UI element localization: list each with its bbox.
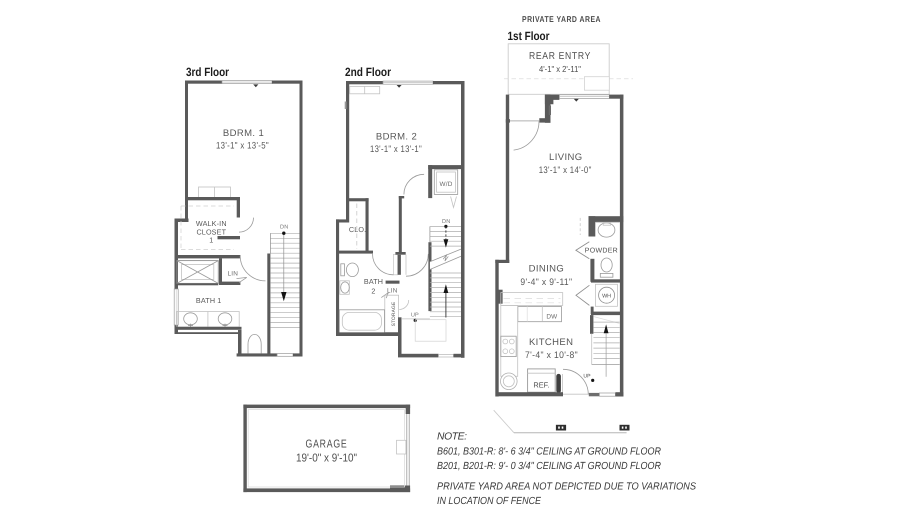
svg-text:UP: UP	[411, 312, 419, 318]
svg-text:IN LOCATION OF FENCE: IN LOCATION OF FENCE	[437, 496, 541, 507]
svg-text:PRIVATE YARD AREA: PRIVATE YARD AREA	[522, 14, 601, 24]
svg-text:DINING: DINING	[529, 264, 565, 275]
svg-text:3rd Floor: 3rd Floor	[186, 65, 229, 79]
svg-text:PRIVATE YARD AREA NOT DEPICTED: PRIVATE YARD AREA NOT DEPICTED DUE TO VA…	[437, 481, 696, 492]
svg-text:KITCHEN: KITCHEN	[529, 337, 574, 348]
svg-text:LIN: LIN	[387, 287, 398, 294]
svg-text:2: 2	[371, 287, 375, 296]
svg-text:STORAGE: STORAGE	[391, 302, 397, 327]
svg-text:BDRM. 2: BDRM. 2	[376, 132, 417, 143]
svg-text:UP: UP	[583, 374, 591, 380]
svg-text:GARAGE: GARAGE	[306, 439, 348, 451]
svg-text:19'-0" x 9'-10": 19'-0" x 9'-10"	[296, 453, 357, 465]
svg-text:W/D: W/D	[439, 181, 452, 188]
svg-text:B201, B201-R: 9'- 0 3/4" CEILI: B201, B201-R: 9'- 0 3/4" CEILING AT GROU…	[437, 461, 661, 472]
svg-text:REF.: REF.	[533, 381, 549, 390]
svg-text:7'-4" x 10'-8": 7'-4" x 10'-8"	[525, 350, 578, 361]
svg-text:LIVING: LIVING	[549, 152, 583, 163]
svg-text:1: 1	[209, 236, 213, 245]
svg-text:LIN: LIN	[228, 271, 239, 278]
svg-text:BATH: BATH	[364, 277, 383, 286]
svg-text:CLO.: CLO.	[349, 225, 366, 234]
svg-text:13'-1" x 13'-1": 13'-1" x 13'-1"	[370, 144, 422, 155]
svg-text:1st Floor: 1st Floor	[508, 29, 550, 43]
svg-text:9'-4" x 9'-11": 9'-4" x 9'-11"	[520, 277, 572, 288]
svg-text:WH: WH	[602, 293, 611, 299]
svg-text:4'-1" x 2'-11": 4'-1" x 2'-11"	[539, 64, 581, 74]
svg-text:DW: DW	[546, 314, 558, 321]
svg-text:POWDER: POWDER	[585, 248, 618, 255]
svg-text:2nd Floor: 2nd Floor	[345, 65, 391, 79]
svg-text:B601, B301-R: 8'- 6 3/4" CEILI: B601, B301-R: 8'- 6 3/4" CEILING AT GROU…	[437, 446, 661, 457]
svg-text:13'-1" x 13'-5": 13'-1" x 13'-5"	[216, 141, 269, 152]
svg-text:BATH 1: BATH 1	[196, 296, 222, 305]
svg-text:BDRM. 1: BDRM. 1	[223, 128, 264, 139]
svg-text:13'-1" x 14'-0": 13'-1" x 14'-0"	[539, 165, 592, 176]
svg-text:NOTE:: NOTE:	[437, 432, 467, 443]
svg-text:DN: DN	[280, 225, 288, 231]
svg-text:REAR ENTRY: REAR ENTRY	[529, 51, 591, 62]
svg-text:DN: DN	[442, 219, 450, 225]
